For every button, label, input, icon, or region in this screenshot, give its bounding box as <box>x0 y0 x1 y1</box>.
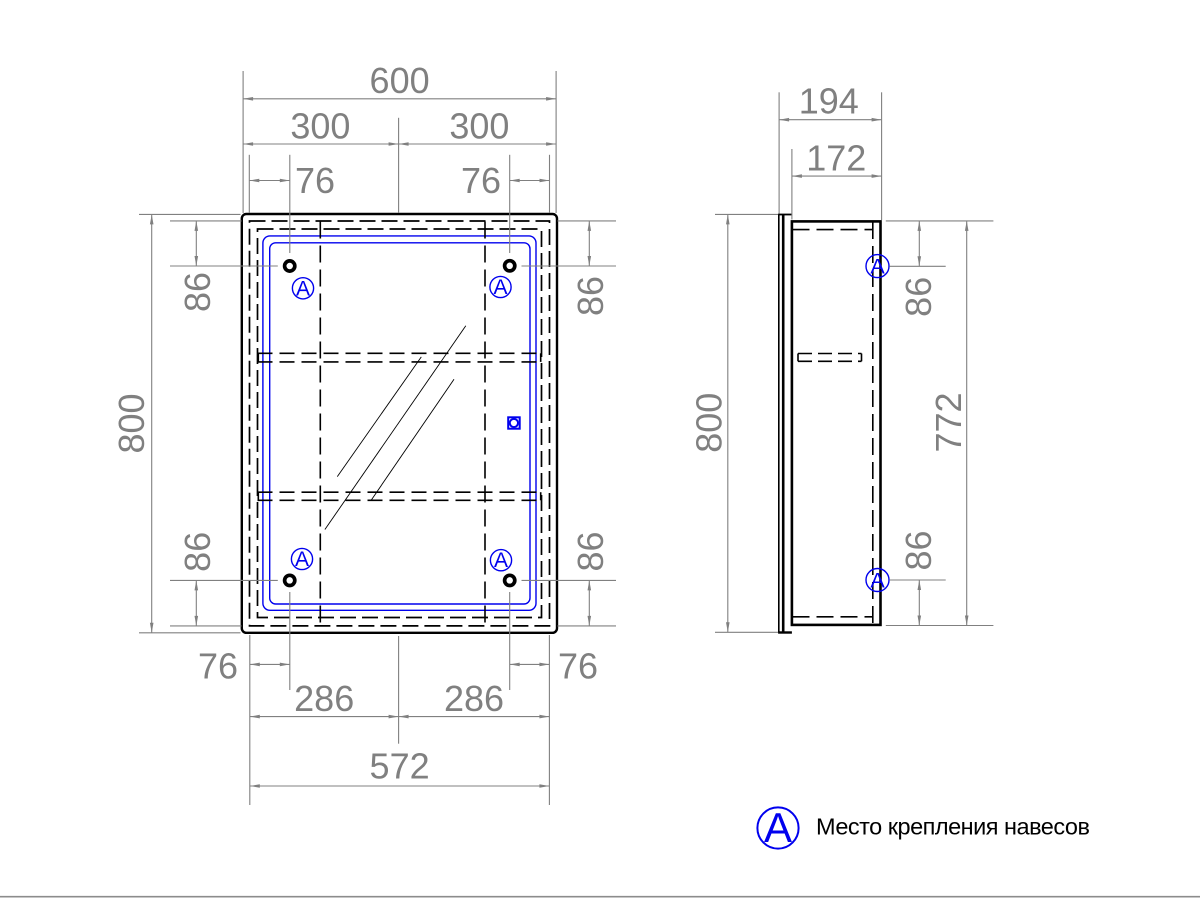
svg-text:300: 300 <box>290 105 350 146</box>
svg-text:86: 86 <box>570 531 611 571</box>
svg-text:A: A <box>764 804 792 851</box>
svg-text:76: 76 <box>461 160 501 201</box>
svg-text:Место крепления навесов: Место крепления навесов <box>816 814 1089 840</box>
svg-text:86: 86 <box>570 276 611 316</box>
svg-text:76: 76 <box>295 160 335 201</box>
svg-text:286: 286 <box>444 678 504 719</box>
svg-text:86: 86 <box>177 272 218 312</box>
svg-text:76: 76 <box>558 645 598 686</box>
svg-text:300: 300 <box>449 105 509 146</box>
svg-text:286: 286 <box>294 678 354 719</box>
svg-text:572: 572 <box>370 745 430 786</box>
svg-text:A: A <box>295 548 309 571</box>
svg-text:600: 600 <box>370 60 430 101</box>
svg-text:76: 76 <box>198 645 238 686</box>
svg-text:800: 800 <box>111 393 152 453</box>
svg-text:A: A <box>493 276 507 299</box>
svg-text:194: 194 <box>799 81 859 122</box>
svg-text:A: A <box>870 254 885 278</box>
svg-text:172: 172 <box>806 138 866 179</box>
svg-text:86: 86 <box>898 530 939 570</box>
svg-text:800: 800 <box>689 393 730 453</box>
svg-text:772: 772 <box>928 392 969 452</box>
svg-text:A: A <box>494 549 508 572</box>
svg-text:86: 86 <box>177 532 218 572</box>
svg-text:A: A <box>870 568 885 592</box>
svg-text:A: A <box>296 277 310 300</box>
svg-text:86: 86 <box>898 277 939 317</box>
